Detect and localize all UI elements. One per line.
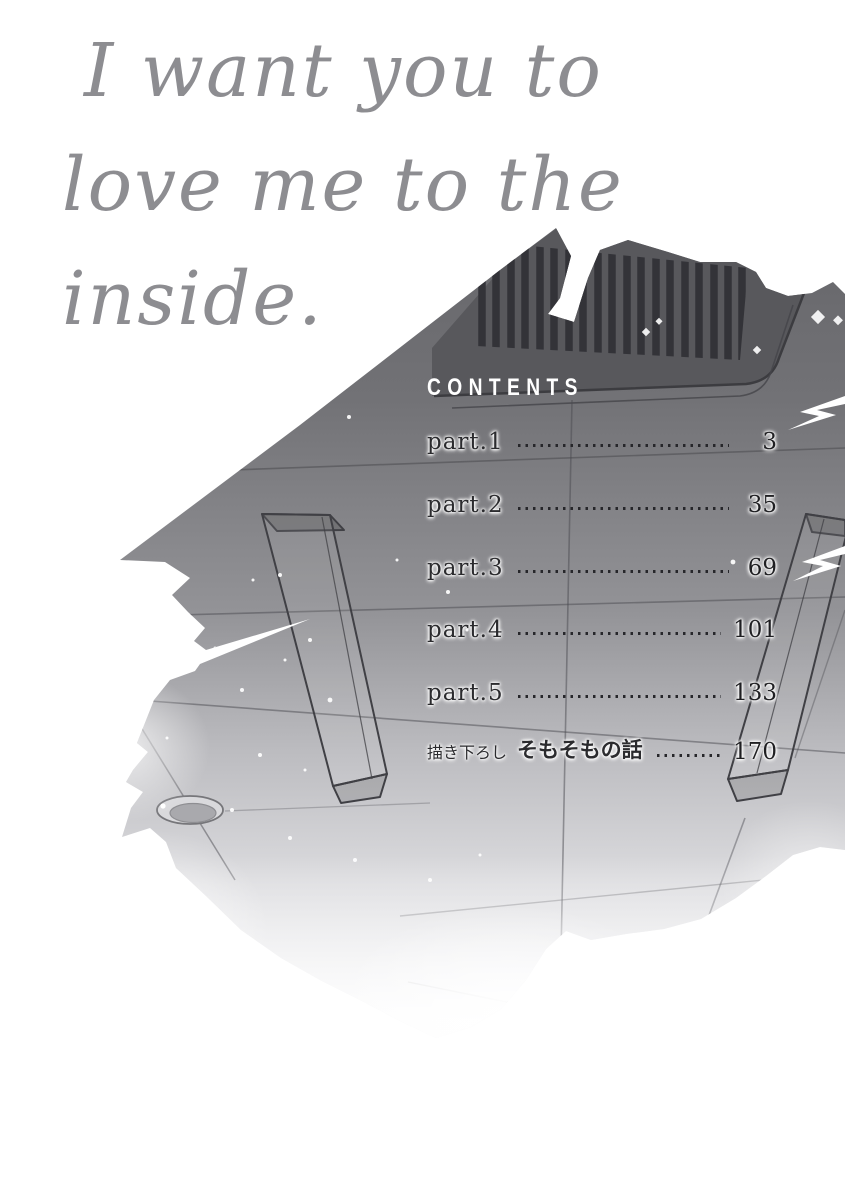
- toc-row[interactable]: part.5133: [427, 678, 777, 706]
- toc-leader-dots: [518, 507, 729, 510]
- toc-entry-prefix: 描き下ろし: [427, 739, 507, 763]
- book-title-line-2: love me to the: [62, 128, 624, 242]
- manga-contents-page: I want you to love me to the inside. CON…: [0, 0, 845, 1200]
- toc-page-number: 69: [741, 555, 777, 581]
- toc-leader-dots: [518, 632, 721, 635]
- toc-leader-dots: [518, 570, 729, 573]
- book-title: I want you to love me to the inside.: [62, 14, 624, 356]
- toc-leader-dots: [518, 444, 729, 447]
- toc-page-number: 170: [733, 739, 777, 765]
- book-title-line-1: I want you to: [62, 14, 624, 128]
- toc-page-number: 133: [733, 680, 777, 706]
- toc-row[interactable]: part.13: [427, 427, 777, 455]
- toc-entry-label: part.2: [427, 492, 504, 518]
- toc-leader-dots: [518, 695, 721, 698]
- toc-row[interactable]: part.4101: [427, 615, 777, 643]
- contents-heading: CONTENTS: [427, 374, 584, 402]
- toc-row[interactable]: part.369: [427, 553, 777, 581]
- toc-page-number: 35: [741, 492, 777, 518]
- toc-page-number: 3: [741, 429, 777, 455]
- toc-leader-dots: [657, 754, 721, 757]
- toc-row[interactable]: 描き下ろしそもそもの話170: [427, 737, 777, 765]
- toc-entry-label: part.4: [427, 617, 504, 643]
- toc-row[interactable]: part.235: [427, 490, 777, 518]
- book-title-line-3: inside.: [62, 242, 624, 356]
- toc-entry-label: part.3: [427, 555, 504, 581]
- toc-entry-label: part.5: [427, 680, 504, 706]
- toc-page-number: 101: [733, 617, 777, 643]
- toc-entry-label: そもそもの話: [517, 734, 643, 764]
- toc-entry-label: part.1: [427, 429, 504, 455]
